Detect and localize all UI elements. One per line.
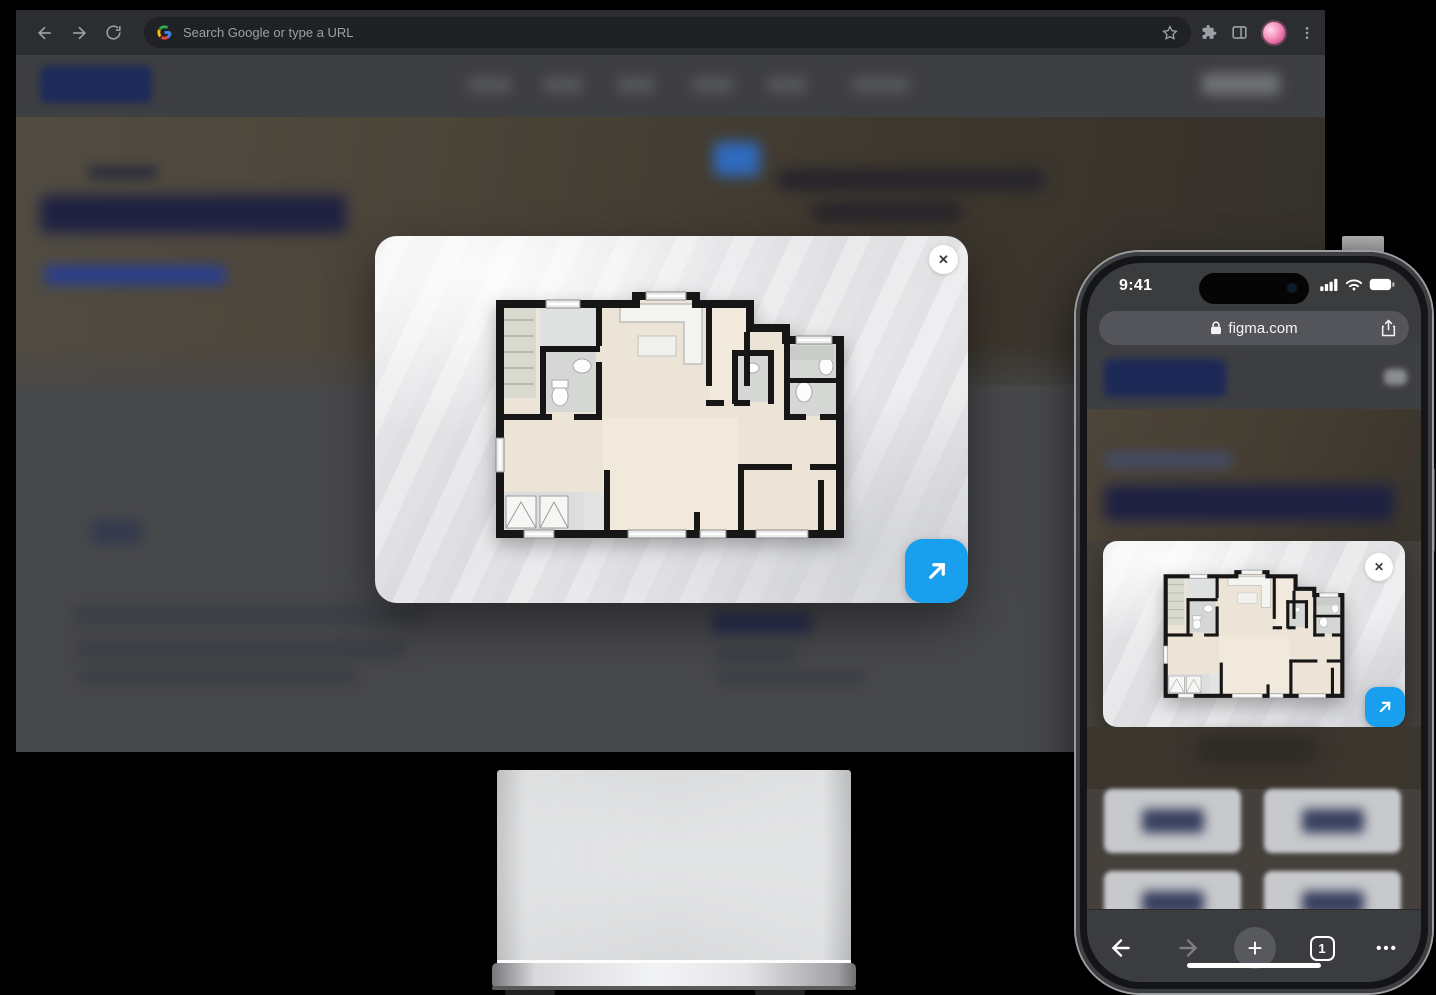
monitor-stand-body xyxy=(497,770,851,962)
card-text-line xyxy=(72,605,424,625)
phone-status-bar: 9:41 xyxy=(1087,263,1421,309)
card-text-line xyxy=(716,647,798,663)
phone-dark-strip xyxy=(1087,727,1421,789)
front-camera xyxy=(1287,283,1297,293)
header-action[interactable] xyxy=(1202,73,1280,95)
back-arrow-icon xyxy=(35,23,55,43)
floorplan-image xyxy=(488,288,852,544)
floorplan-modal: ✕ xyxy=(375,236,968,603)
phone-hero-headline xyxy=(1104,485,1394,521)
status-icons xyxy=(1320,278,1395,291)
lock-icon xyxy=(1210,321,1222,335)
hero-right-text-line xyxy=(812,203,962,221)
phone-grid-card[interactable] xyxy=(1104,871,1241,909)
monitor-stand-foot xyxy=(755,990,805,995)
phone-browser-toolbar: + 1 ••• xyxy=(1087,909,1421,982)
phone-card-grid xyxy=(1087,789,1421,909)
phone-grid-card-label xyxy=(1142,809,1204,833)
phone-grid-card[interactable] xyxy=(1104,789,1241,853)
share-icon[interactable] xyxy=(1380,318,1397,338)
phone-menu-button[interactable]: ••• xyxy=(1365,926,1409,970)
phone-grid-card-label xyxy=(1302,891,1364,909)
forward-arrow-icon xyxy=(69,23,89,43)
hero-headline-text xyxy=(40,195,346,233)
tab-count: 1 xyxy=(1310,936,1335,961)
phone-grid-card-label xyxy=(1302,809,1364,833)
google-logo-icon xyxy=(156,24,173,41)
menu-dots-icon[interactable] xyxy=(1299,25,1315,41)
phone-section-title xyxy=(1197,737,1317,763)
phone-screen: 9:41 xyxy=(1087,263,1421,982)
hamburger-menu-icon[interactable] xyxy=(1384,369,1407,385)
card-badge xyxy=(92,520,142,544)
site-header xyxy=(16,55,1325,117)
card-heading xyxy=(712,612,812,634)
phone-address-bar[interactable]: figma.com xyxy=(1099,311,1409,345)
reload-icon xyxy=(104,23,123,42)
status-time: 9:41 xyxy=(1119,277,1152,295)
phone-floorplan-card: ✕ xyxy=(1103,541,1405,727)
hero-link-text[interactable] xyxy=(44,265,226,285)
side-panel-icon[interactable] xyxy=(1230,23,1249,42)
iphone-mockup: 9:41 xyxy=(1076,252,1432,993)
monitor-stand-base xyxy=(492,963,856,988)
card-text-line xyxy=(76,639,406,659)
phone-card-expand-button[interactable] xyxy=(1365,687,1405,727)
profile-avatar[interactable] xyxy=(1261,20,1287,46)
phone-hero-eyebrow xyxy=(1104,451,1232,469)
battery-icon xyxy=(1369,278,1395,291)
signal-icon xyxy=(1320,278,1339,291)
phone-hero xyxy=(1087,409,1421,541)
toolbar-right-icons xyxy=(1199,10,1315,55)
phone-floorplan-image xyxy=(1159,568,1349,701)
phone-url: figma.com xyxy=(1228,320,1297,337)
scene-canvas: Search Google or type a URL xyxy=(0,0,1436,995)
home-indicator[interactable] xyxy=(1187,963,1321,968)
hero-eyebrow-text xyxy=(88,165,158,180)
extensions-puzzle-icon[interactable] xyxy=(1199,23,1218,42)
browser-toolbar: Search Google or type a URL xyxy=(16,10,1325,55)
reload-button[interactable] xyxy=(98,18,128,48)
address-bar[interactable]: Search Google or type a URL xyxy=(144,17,1191,48)
ellipsis-icon: ••• xyxy=(1376,940,1398,957)
nav-item[interactable] xyxy=(468,77,512,93)
card-text-line xyxy=(716,671,866,686)
phone-site-logo[interactable] xyxy=(1104,359,1226,397)
wifi-icon xyxy=(1345,278,1363,291)
bookmark-star-icon[interactable] xyxy=(1161,24,1179,42)
nav-item[interactable] xyxy=(692,77,734,93)
hero-badge-logo xyxy=(714,142,760,176)
modal-expand-button[interactable] xyxy=(905,539,968,603)
monitor-stand-foot xyxy=(505,990,555,995)
dynamic-island xyxy=(1199,273,1309,304)
phone-page-blurred: ✕ xyxy=(1087,345,1421,909)
address-bar-placeholder: Search Google or type a URL xyxy=(183,25,1161,40)
card-text-line xyxy=(78,667,358,685)
nav-item[interactable] xyxy=(543,77,583,93)
forward-button[interactable] xyxy=(64,18,94,48)
modal-close-button[interactable]: ✕ xyxy=(929,245,958,274)
expand-arrow-icon xyxy=(922,556,952,586)
back-arrow-icon xyxy=(1108,935,1134,961)
nav-item[interactable] xyxy=(617,77,655,93)
phone-site-header xyxy=(1087,345,1421,409)
nav-item[interactable] xyxy=(767,77,807,93)
hero-right-text-line xyxy=(778,169,1044,191)
phone-grid-card[interactable] xyxy=(1264,871,1401,909)
phone-back-button[interactable] xyxy=(1099,926,1143,970)
phone-grid-card[interactable] xyxy=(1264,789,1401,853)
expand-arrow-icon xyxy=(1375,697,1395,717)
site-logo[interactable] xyxy=(40,66,152,103)
forward-arrow-icon xyxy=(1175,935,1201,961)
phone-grid-card-label xyxy=(1142,891,1204,909)
back-button[interactable] xyxy=(30,18,60,48)
nav-item[interactable] xyxy=(852,77,910,93)
phone-card-close-button[interactable]: ✕ xyxy=(1365,553,1393,581)
